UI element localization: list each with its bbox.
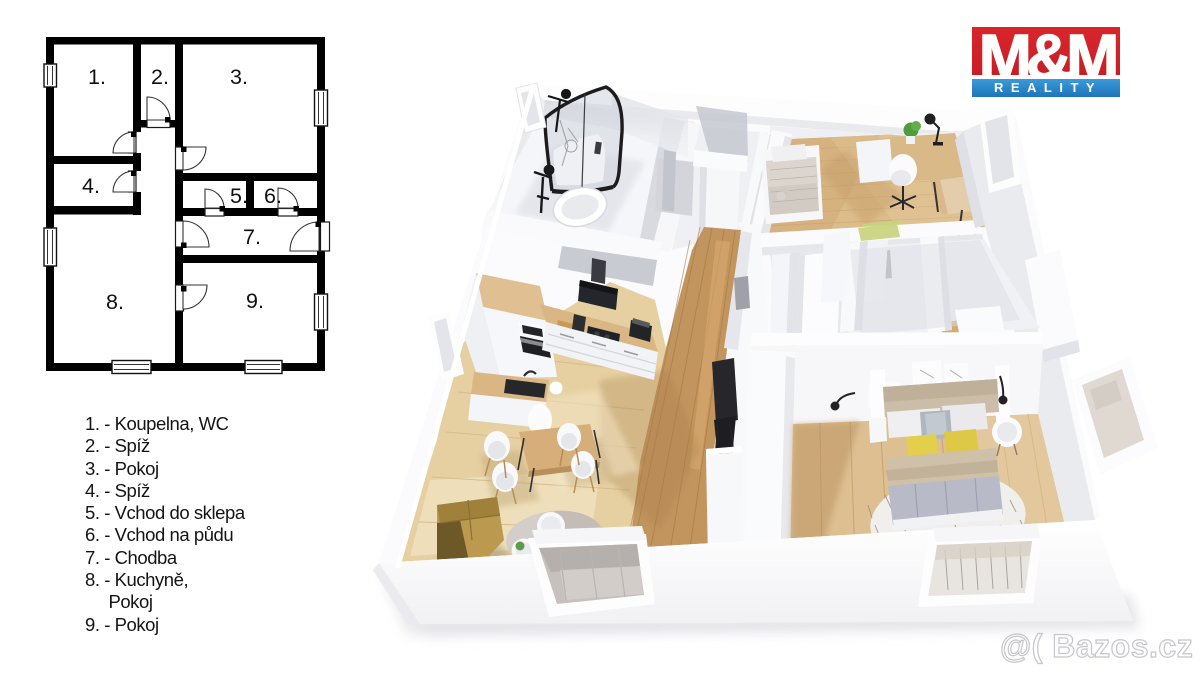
svg-text:8.: 8. [106, 290, 124, 314]
svg-text:9.: 9. [246, 289, 264, 313]
svg-text:5.: 5. [230, 184, 248, 208]
svg-text:1.: 1. [88, 65, 106, 89]
svg-text:4.: 4. [82, 174, 100, 198]
svg-text:7.: 7. [243, 225, 261, 249]
svg-text:3.: 3. [230, 65, 248, 89]
svg-text:6.: 6. [264, 184, 282, 208]
svg-text:2.: 2. [151, 65, 169, 89]
